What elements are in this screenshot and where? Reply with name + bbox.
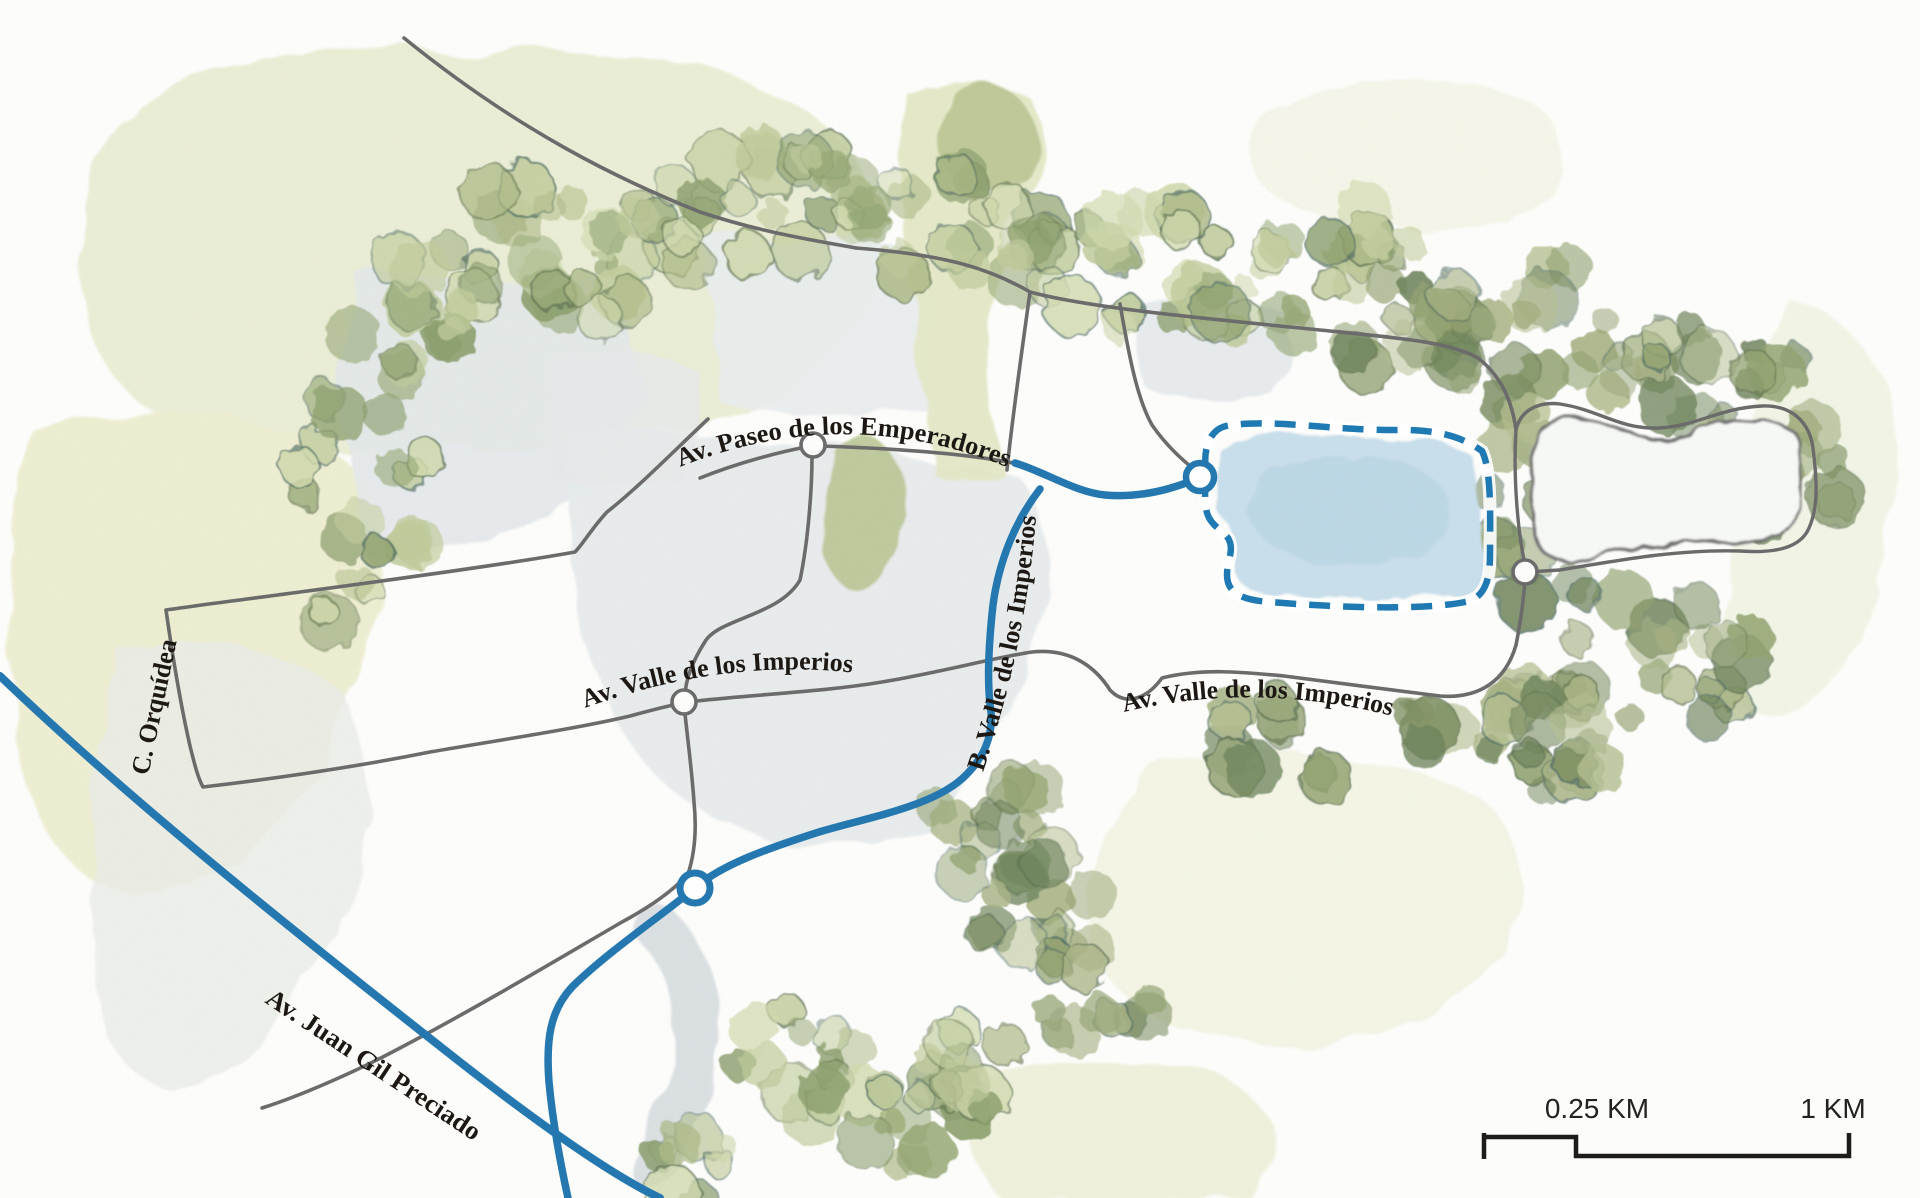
tree-blob: [1568, 576, 1601, 609]
tree-blob: [721, 183, 753, 215]
tree-blob: [381, 344, 416, 379]
tree-blob: [788, 1018, 815, 1045]
tree-blob: [771, 223, 828, 280]
tree-blob: [1680, 328, 1736, 384]
tree-blob: [1306, 218, 1354, 266]
tree-blob: [533, 190, 563, 220]
tree-blob: [1643, 344, 1670, 371]
junction-node-gray: [672, 690, 696, 714]
park-map-svg: Av. Paseo de los Emperadores Av. Valle d…: [0, 0, 1920, 1198]
lake-region: [1216, 434, 1482, 599]
tree-blob: [1704, 621, 1748, 665]
scale-bar: 0.25 KM 1 KM: [1482, 1093, 1866, 1159]
tree-blob: [881, 239, 916, 274]
tree-blob: [1332, 331, 1375, 374]
tree-blob: [1618, 705, 1644, 731]
tree-blob: [1366, 264, 1405, 303]
tree-blob: [948, 247, 991, 290]
tree-blob: [905, 1083, 934, 1112]
tree-blob: [1448, 363, 1480, 395]
tree-blob: [1261, 233, 1294, 266]
tree-blob: [311, 385, 367, 441]
scale-bar-line: [1482, 1133, 1849, 1159]
tree-blob: [1209, 700, 1250, 741]
tree-blob: [1085, 192, 1142, 249]
tree-blob: [657, 1123, 702, 1168]
scale-label-one: 1 KM: [1800, 1093, 1865, 1124]
field-center: [565, 428, 1050, 844]
tree-blob: [1103, 310, 1137, 344]
tree-blob: [729, 1002, 780, 1053]
label-juan-gil: Av. Juan Gil Preciado: [261, 983, 487, 1147]
tree-blob: [1592, 308, 1618, 334]
tree-blob: [1428, 269, 1478, 319]
tree-blob: [1515, 738, 1542, 765]
field-small-west: [545, 351, 701, 488]
tree-cluster: [1510, 693, 1627, 804]
junction-node-blue: [1186, 463, 1214, 491]
tree-blob: [1580, 744, 1626, 790]
tree-blob: [759, 200, 788, 229]
park-map-canvas: Av. Paseo de los Emperadores Av. Valle d…: [0, 0, 1920, 1198]
tree-blob: [710, 1134, 738, 1162]
tree-blob: [1067, 870, 1117, 920]
tree-blob: [1393, 699, 1421, 727]
tree-blob: [1224, 740, 1282, 798]
scale-label-quarter: 0.25 KM: [1545, 1093, 1649, 1124]
tree-blob: [377, 450, 417, 490]
tree-blob: [1280, 296, 1310, 326]
tree-blob: [793, 143, 822, 172]
tree-blob: [798, 1065, 848, 1115]
tree-blob: [935, 154, 977, 196]
tree-blob: [826, 157, 880, 211]
junction-node-blue: [680, 873, 710, 903]
junction-node-gray: [1513, 560, 1537, 584]
tree-blob: [936, 845, 989, 898]
tree-blob: [389, 239, 447, 297]
tree-blob: [1392, 226, 1426, 260]
tree-blob: [280, 447, 320, 487]
tree-blob: [1552, 693, 1610, 751]
tree-blob: [1362, 228, 1393, 259]
tree-blob: [1043, 277, 1102, 336]
tree-blob: [1161, 210, 1200, 249]
road-vertical-1: [1007, 292, 1030, 470]
tree-blob: [724, 232, 771, 279]
tree-blob: [1661, 668, 1697, 704]
tree-blob: [1403, 726, 1447, 770]
tree-blob: [937, 1057, 990, 1110]
tree-blob: [1470, 310, 1497, 337]
tree-blob: [1630, 621, 1677, 668]
tree-blob: [998, 919, 1048, 969]
tree-blob: [1528, 776, 1555, 803]
tree-blob: [998, 242, 1025, 269]
tree-blob: [1562, 624, 1595, 657]
tree-blob: [564, 270, 600, 306]
tree-blob: [966, 916, 1002, 952]
tree-blob: [1599, 353, 1642, 396]
tree-blob: [617, 197, 660, 240]
wash-top-right: [1252, 80, 1560, 232]
tree-blob: [1729, 348, 1774, 393]
tree-blob: [1021, 840, 1067, 886]
tree-blob: [1190, 282, 1250, 342]
tree-blob: [362, 536, 394, 568]
tree-blob: [1594, 570, 1654, 630]
tree-blob: [1512, 301, 1541, 330]
tree-blob: [983, 1023, 1026, 1066]
wash-bottom-right-lower: [969, 1057, 1273, 1198]
tree-blob: [1033, 996, 1065, 1028]
white-field: [1530, 418, 1802, 560]
tree-blob: [324, 307, 380, 363]
tree-blob: [1300, 752, 1353, 805]
tree-blob: [1687, 696, 1731, 740]
tree-blob: [1384, 320, 1437, 373]
tree-blob: [309, 597, 337, 625]
tree-blob: [460, 164, 517, 221]
tree-blob: [1078, 993, 1120, 1035]
tree-blob: [440, 289, 481, 330]
tree-blob: [1135, 984, 1166, 1015]
tree-blob: [1060, 943, 1108, 991]
lake-core: [1250, 455, 1450, 565]
